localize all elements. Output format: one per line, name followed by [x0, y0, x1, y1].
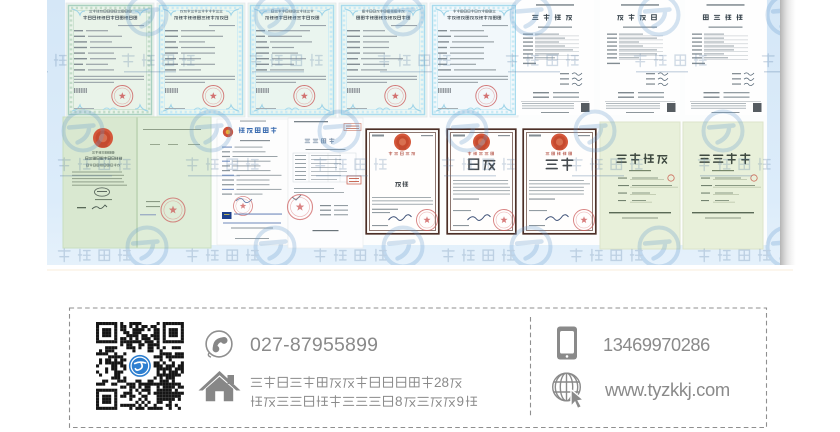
svg-text:027-87955899: 027-87955899 — [250, 334, 378, 356]
svg-text:28: 28 — [434, 375, 449, 390]
svg-text:13469970286: 13469970286 — [603, 335, 710, 355]
svg-text:9: 9 — [457, 394, 465, 409]
svg-text:www.tyzkkj.com: www.tyzkkj.com — [604, 379, 730, 400]
svg-text:8: 8 — [395, 394, 403, 409]
